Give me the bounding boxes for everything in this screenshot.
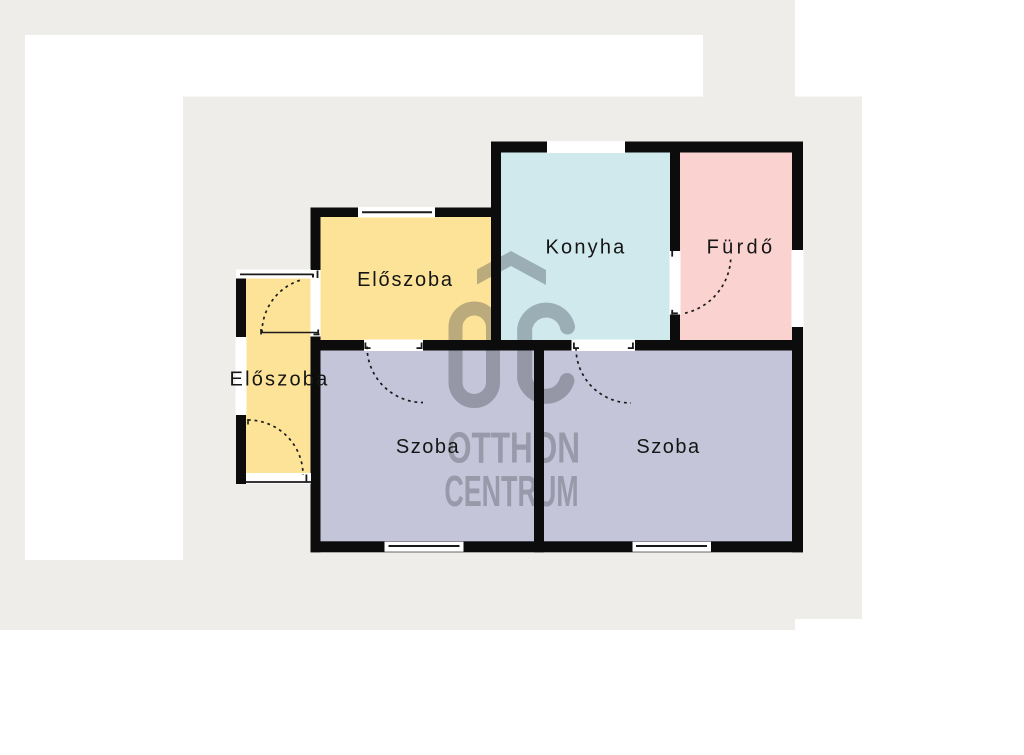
svg-text:Fürdő: Fürdő <box>707 237 776 259</box>
svg-text:Szoba: Szoba <box>396 436 460 458</box>
svg-text:Konyha: Konyha <box>545 237 626 259</box>
svg-text:Szoba: Szoba <box>636 436 700 458</box>
svg-text:Előszoba: Előszoba <box>357 269 454 291</box>
svg-text:CENTRUM: CENTRUM <box>444 466 578 515</box>
svg-text:Előszoba: Előszoba <box>230 369 330 391</box>
